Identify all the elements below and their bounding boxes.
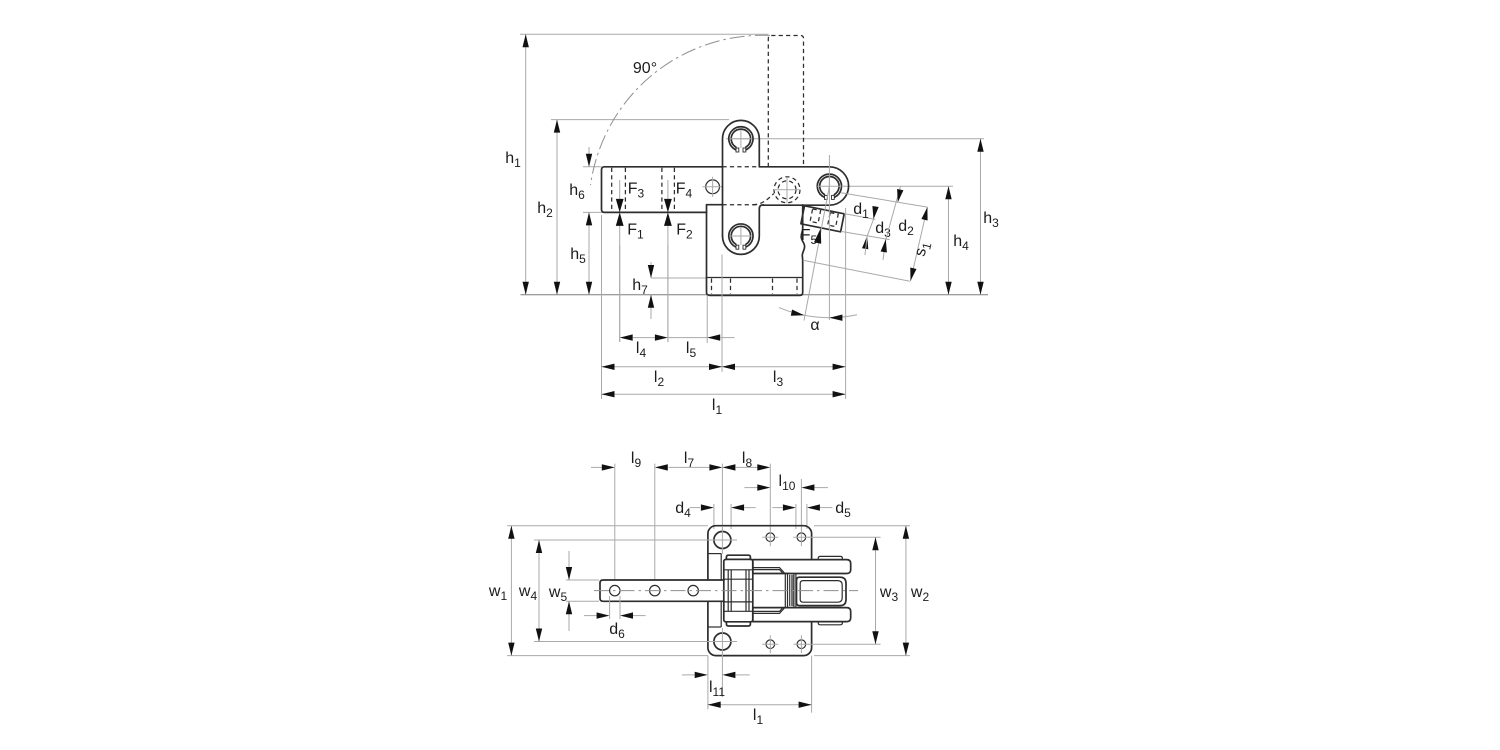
svg-text:α: α (810, 317, 819, 334)
svg-text:90°: 90° (633, 60, 657, 77)
